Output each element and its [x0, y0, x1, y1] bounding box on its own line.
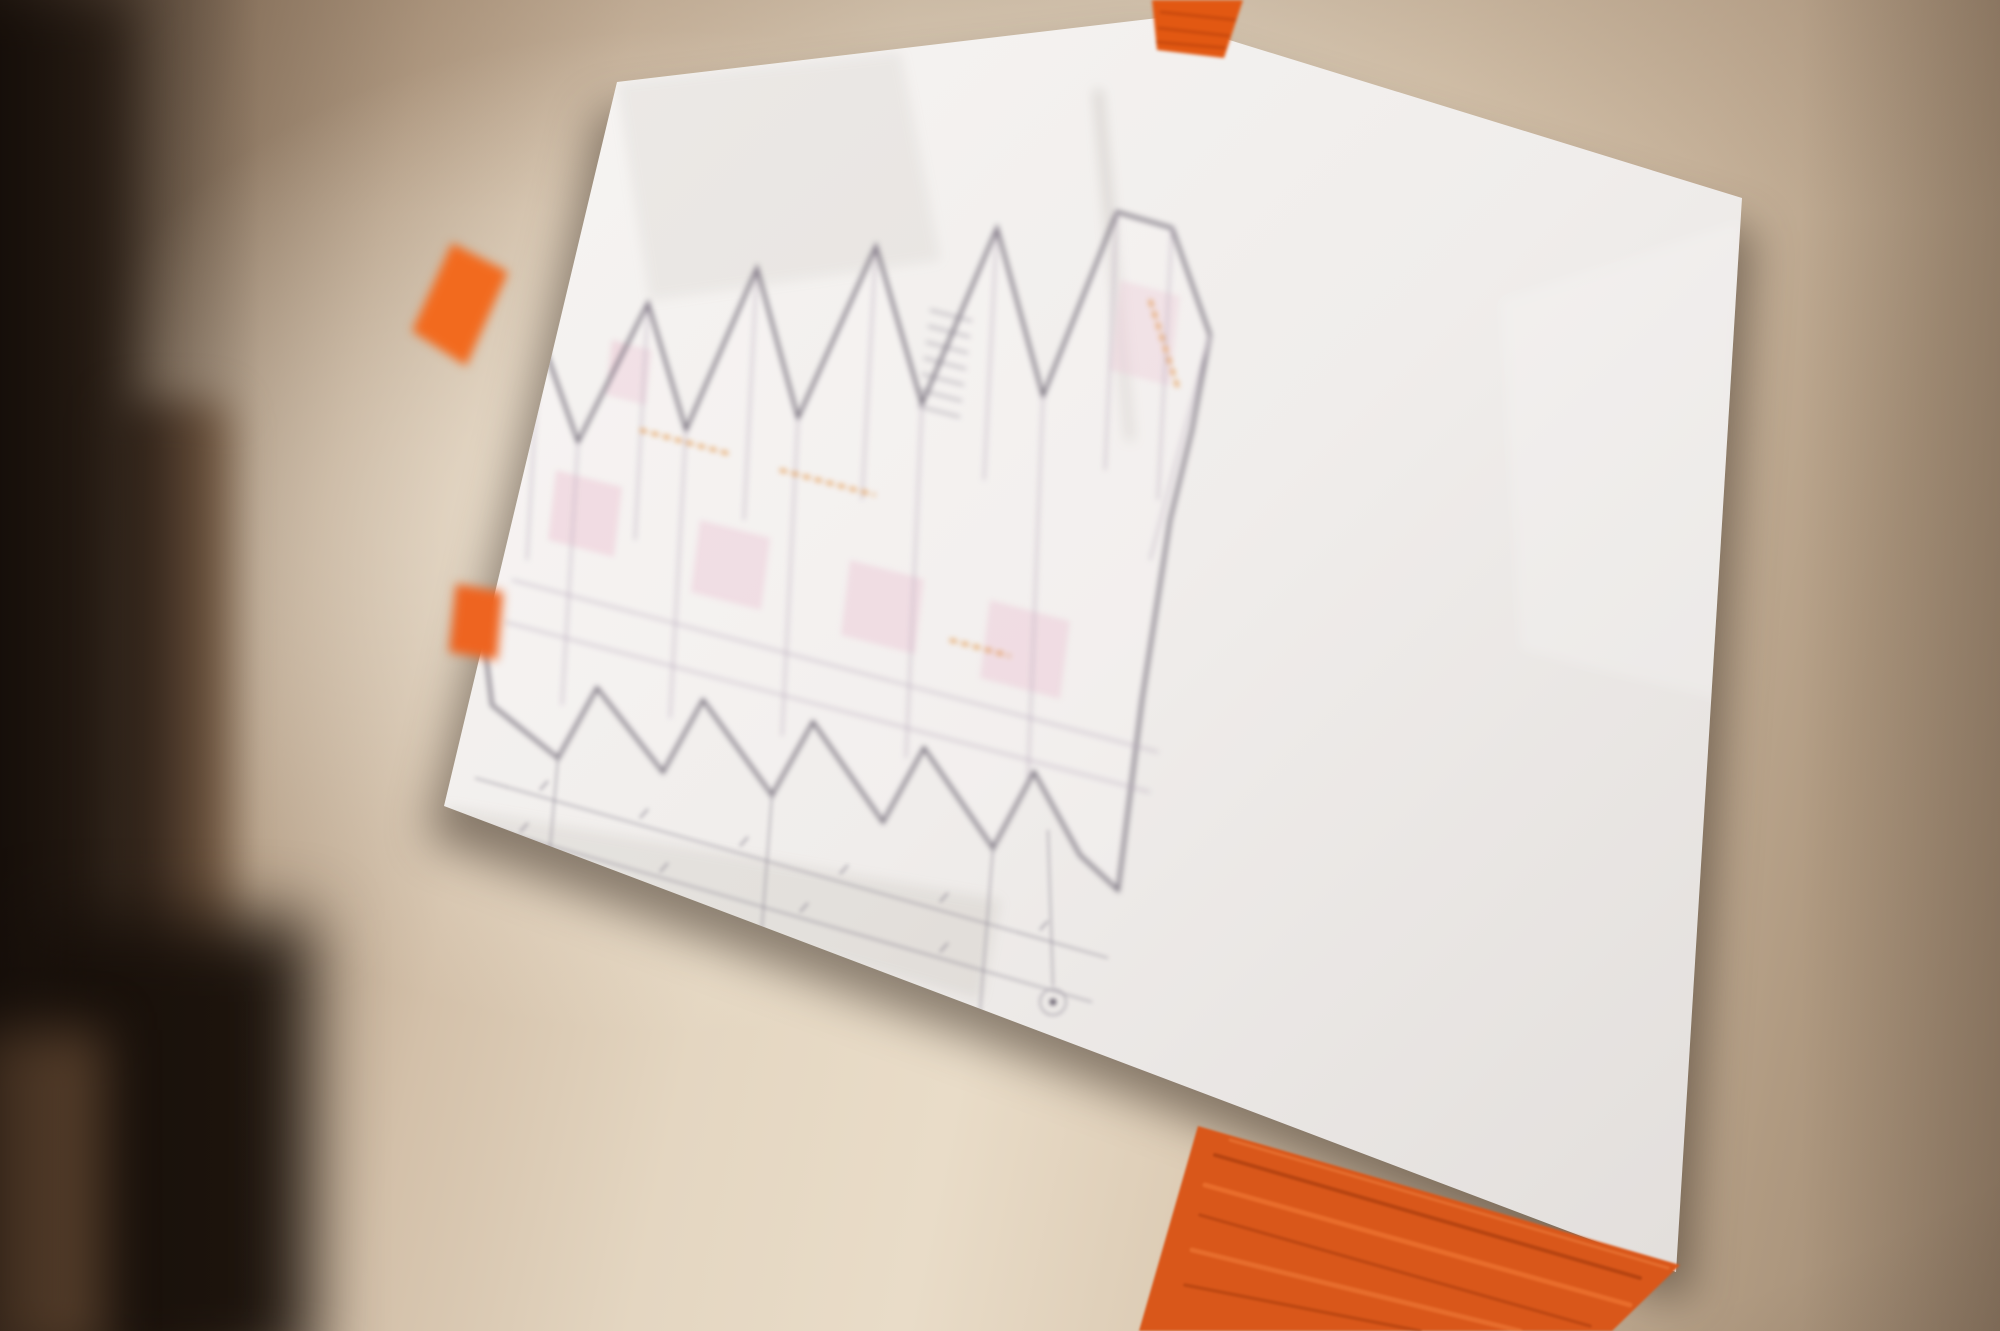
photo-blueprint-on-wall: LEGENDA: - elementy istniejące - element… [0, 0, 2000, 1331]
tape-top-left [412, 243, 508, 366]
tape-layer [0, 0, 2000, 1331]
tape-bottom-right [1139, 1126, 1680, 1331]
tape-left-lower [449, 584, 503, 660]
tape-top-right [1152, 0, 1243, 58]
